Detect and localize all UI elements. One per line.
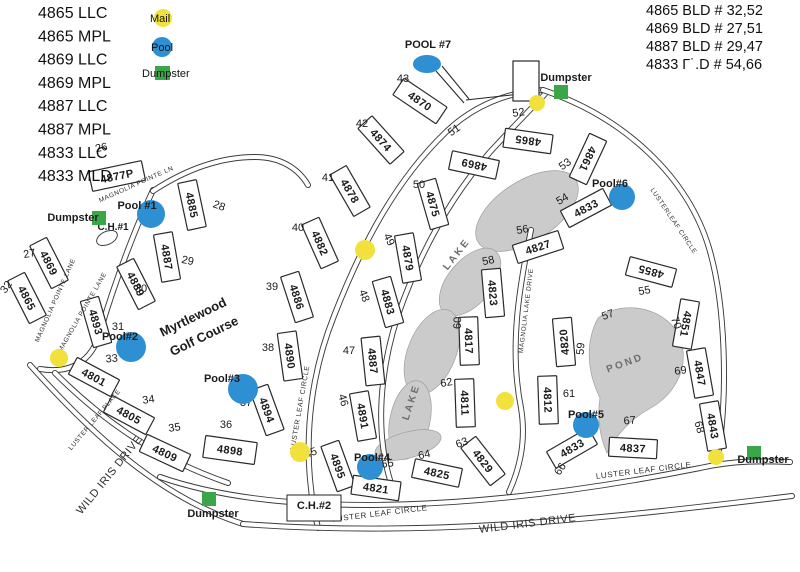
community-map-page: 4877P48854869488748894865489348014805480… bbox=[0, 0, 800, 572]
mail-icon bbox=[50, 349, 68, 367]
dumpster-label: Dumpster bbox=[737, 454, 789, 466]
pool-label: Pool#6 bbox=[592, 178, 628, 190]
unit-number: 36 bbox=[220, 419, 232, 431]
legend-left-line: 4887 LLC bbox=[38, 98, 107, 115]
legend-left-line: 4865 MPL bbox=[38, 28, 111, 45]
clubhouse-label: C.H.#2 bbox=[297, 500, 331, 512]
unit-number: 64 bbox=[417, 448, 431, 462]
unit-number: 33 bbox=[105, 353, 118, 366]
pool-label: Pool#2 bbox=[102, 331, 138, 343]
unit-number: 30 bbox=[135, 283, 147, 295]
legend-left-line: 4869 MPL bbox=[38, 75, 111, 92]
mail-legend-label: Mail bbox=[150, 13, 170, 25]
unit-number: 39 bbox=[266, 281, 278, 293]
mail-icon bbox=[355, 240, 375, 260]
pool-label: Pool#4 bbox=[354, 452, 391, 464]
legend-left-line: 4887 MPL bbox=[38, 122, 111, 139]
pool-label: Pool#5 bbox=[568, 409, 604, 421]
mail-icon bbox=[529, 95, 545, 111]
legend-right-line: 4869 BLD # 27,51 bbox=[646, 21, 763, 37]
unit-number: 61 bbox=[563, 388, 575, 400]
unit-number: 38 bbox=[262, 342, 274, 354]
unit-number: 56 bbox=[515, 223, 529, 237]
legend-right-line: 4833 Γ˙.D # 54,66 bbox=[646, 57, 762, 73]
pool-legend-label: Pool bbox=[151, 42, 173, 54]
mail-icon bbox=[496, 392, 514, 410]
dumpster-legend-label: Dumpster bbox=[142, 68, 190, 80]
unit-number: 67 bbox=[623, 415, 636, 428]
building: 4811 bbox=[455, 379, 476, 428]
unit-number: 29 bbox=[180, 254, 194, 268]
clubhouse-label: POOL #7 bbox=[405, 39, 451, 51]
building-label: 4811 bbox=[458, 390, 471, 416]
unit-number: 60 bbox=[452, 317, 464, 330]
building-label: 4820 bbox=[558, 328, 572, 355]
dumpster-label: Dumpster bbox=[47, 212, 99, 224]
legend-left-line: 4869 LLC bbox=[38, 52, 107, 69]
building: 4812 bbox=[538, 376, 559, 425]
unit-number: 47 bbox=[343, 345, 355, 357]
unit-number: 42 bbox=[356, 118, 368, 130]
unit-number: 55 bbox=[637, 284, 651, 298]
unit-number: 35 bbox=[168, 421, 182, 435]
mail-icon bbox=[290, 442, 310, 462]
legend-right-line: 4887 BLD # 29,47 bbox=[646, 39, 763, 55]
dumpster-label: Dumpster bbox=[187, 508, 239, 520]
unit-number: 40 bbox=[292, 222, 304, 234]
building: 4823 bbox=[481, 268, 504, 317]
unit-number: 43 bbox=[397, 73, 409, 85]
building: 4837 bbox=[609, 437, 658, 458]
building-label: 4823 bbox=[485, 280, 499, 307]
legend-right-line: 4865 BLD # 32,52 bbox=[646, 3, 763, 19]
pool-icon bbox=[413, 55, 441, 73]
unit-number: 69 bbox=[674, 364, 688, 378]
building-label: 4812 bbox=[541, 387, 554, 413]
unit-number: 50 bbox=[413, 179, 425, 191]
dumpster-label: Dumpster bbox=[540, 72, 592, 84]
unit-number: 41 bbox=[322, 172, 334, 184]
unit-number: 62 bbox=[439, 376, 453, 390]
building-label: 4837 bbox=[620, 442, 647, 455]
unit-number: 27 bbox=[22, 247, 36, 261]
community-map: 4877P48854869488748894865489348014805480… bbox=[0, 0, 800, 572]
pool-label: Pool #1 bbox=[117, 200, 156, 212]
legend-left-line: 4833 LLC bbox=[38, 145, 107, 162]
building: 4820 bbox=[552, 317, 575, 366]
legend-left-line: 4865 LLC bbox=[38, 5, 107, 22]
dumpster-icon bbox=[554, 85, 568, 99]
unit-number: 58 bbox=[481, 254, 495, 268]
unit-number: 34 bbox=[142, 393, 156, 407]
unit-number: 52 bbox=[512, 106, 526, 120]
pool-label: Pool#3 bbox=[204, 373, 240, 385]
dumpster-icon bbox=[202, 492, 216, 506]
clubhouse-structure bbox=[513, 61, 539, 101]
mail-icon bbox=[708, 449, 724, 465]
unit-number: 59 bbox=[575, 342, 588, 355]
legend-left-line: 4833 MLD bbox=[38, 168, 112, 185]
building-label: 4817 bbox=[462, 328, 475, 354]
